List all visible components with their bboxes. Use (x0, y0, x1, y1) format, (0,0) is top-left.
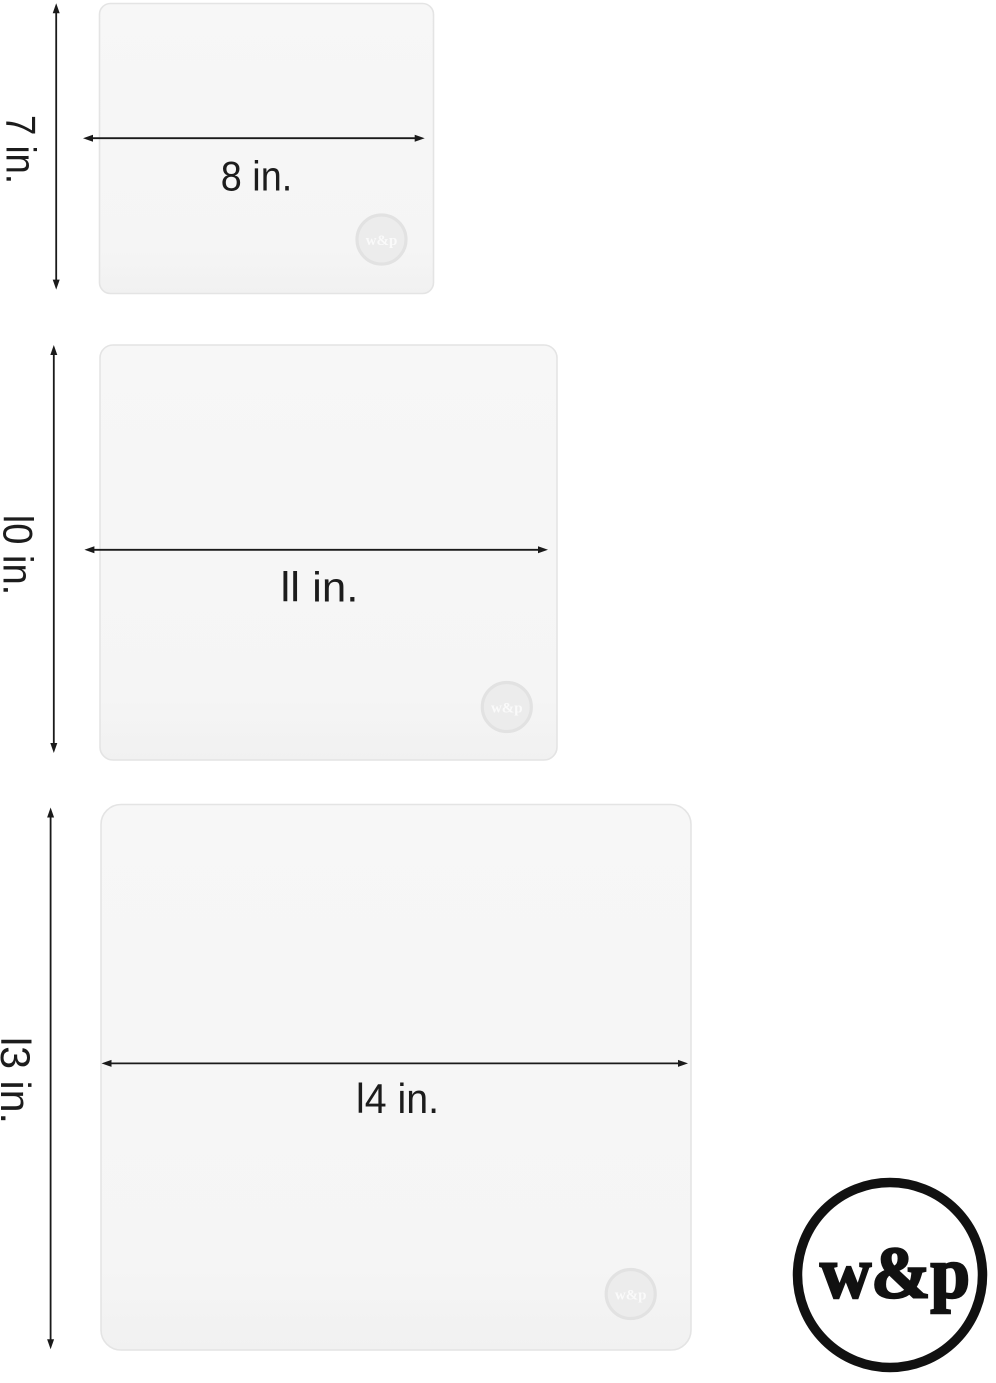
svg-text:w&p: w&p (820, 1233, 970, 1314)
svg-text:w&p: w&p (615, 1288, 647, 1304)
svg-text:l4 in.: l4 in. (356, 1075, 439, 1122)
svg-text:7 in.: 7 in. (0, 115, 45, 184)
svg-text:l0 in.: l0 in. (0, 515, 41, 596)
svg-text:w&p: w&p (366, 233, 398, 249)
svg-text:w&p: w&p (491, 701, 523, 717)
svg-text:ll in.: ll in. (281, 564, 359, 611)
svg-text:l3 in.: l3 in. (0, 1037, 39, 1124)
svg-text:8 in.: 8 in. (221, 153, 293, 200)
